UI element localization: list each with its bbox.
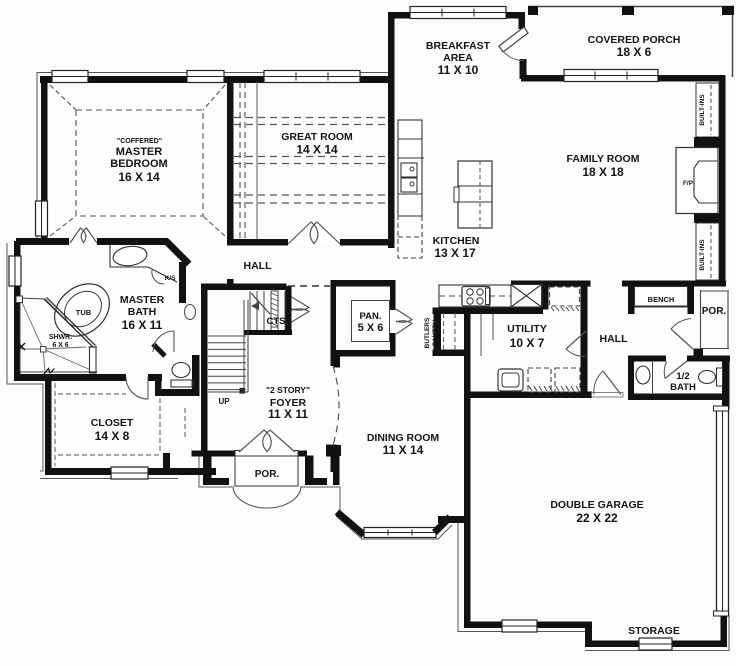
svg-text:18 X 18: 18 X 18 (582, 165, 624, 179)
svg-text:K/S: K/S (165, 275, 177, 282)
svg-text:TUB: TUB (76, 308, 92, 317)
svg-text:"2 STORY": "2 STORY" (266, 385, 310, 395)
svg-text:13 X 17: 13 X 17 (434, 246, 476, 260)
svg-text:PAN.: PAN. (360, 311, 382, 322)
svg-text:DOUBLE GARAGE: DOUBLE GARAGE (550, 499, 643, 511)
svg-text:"COFFERED": "COFFERED" (117, 138, 162, 145)
svg-text:GREAT ROOM: GREAT ROOM (281, 131, 353, 143)
svg-text:11 X 10: 11 X 10 (438, 63, 479, 77)
svg-text:POR.: POR. (255, 469, 280, 480)
svg-text:16 X 14: 16 X 14 (118, 170, 160, 184)
svg-text:STORAGE: STORAGE (628, 625, 680, 637)
svg-text:10 X 7: 10 X 7 (510, 336, 545, 350)
svg-text:14 X 8: 14 X 8 (95, 429, 130, 443)
svg-text:18 X 6: 18 X 6 (617, 45, 652, 59)
svg-text:POR.: POR. (702, 306, 727, 317)
svg-text:11 X 11: 11 X 11 (268, 407, 308, 421)
svg-text:CTS: CTS (267, 316, 286, 327)
svg-text:MASTER: MASTER (116, 146, 163, 158)
svg-text:UP: UP (218, 397, 230, 406)
svg-text:FAMILY ROOM: FAMILY ROOM (567, 153, 640, 165)
svg-text:BATH: BATH (128, 306, 156, 318)
svg-text:11 X 14: 11 X 14 (383, 443, 424, 457)
svg-text:CLOSET: CLOSET (91, 417, 134, 429)
svg-text:F/P: F/P (683, 180, 694, 187)
svg-text:6 X 6: 6 X 6 (52, 342, 68, 349)
svg-text:HALL: HALL (244, 260, 273, 272)
svg-text:22 X 22: 22 X 22 (576, 511, 618, 525)
svg-text:5 X 6: 5 X 6 (358, 322, 384, 334)
svg-text:BUTLERS: BUTLERS (424, 317, 431, 348)
svg-text:PANTRY: PANTRY (432, 319, 439, 346)
svg-text:BUILT-INS: BUILT-INS (699, 94, 706, 126)
svg-text:14 X 14: 14 X 14 (296, 143, 338, 157)
svg-text:SHWR.: SHWR. (49, 334, 72, 341)
svg-text:BENCH: BENCH (648, 295, 675, 304)
svg-text:HALL: HALL (600, 333, 629, 345)
svg-text:BREAKFAST: BREAKFAST (426, 40, 491, 52)
svg-text:1/2: 1/2 (676, 371, 689, 382)
svg-text:BUILT-INS: BUILT-INS (699, 239, 706, 271)
svg-text:BATH: BATH (670, 382, 696, 393)
svg-text:BEDROOM: BEDROOM (110, 158, 167, 170)
svg-text:MASTER: MASTER (120, 294, 165, 306)
svg-text:16 X 11: 16 X 11 (122, 318, 163, 332)
svg-text:UTILITY: UTILITY (507, 323, 547, 335)
